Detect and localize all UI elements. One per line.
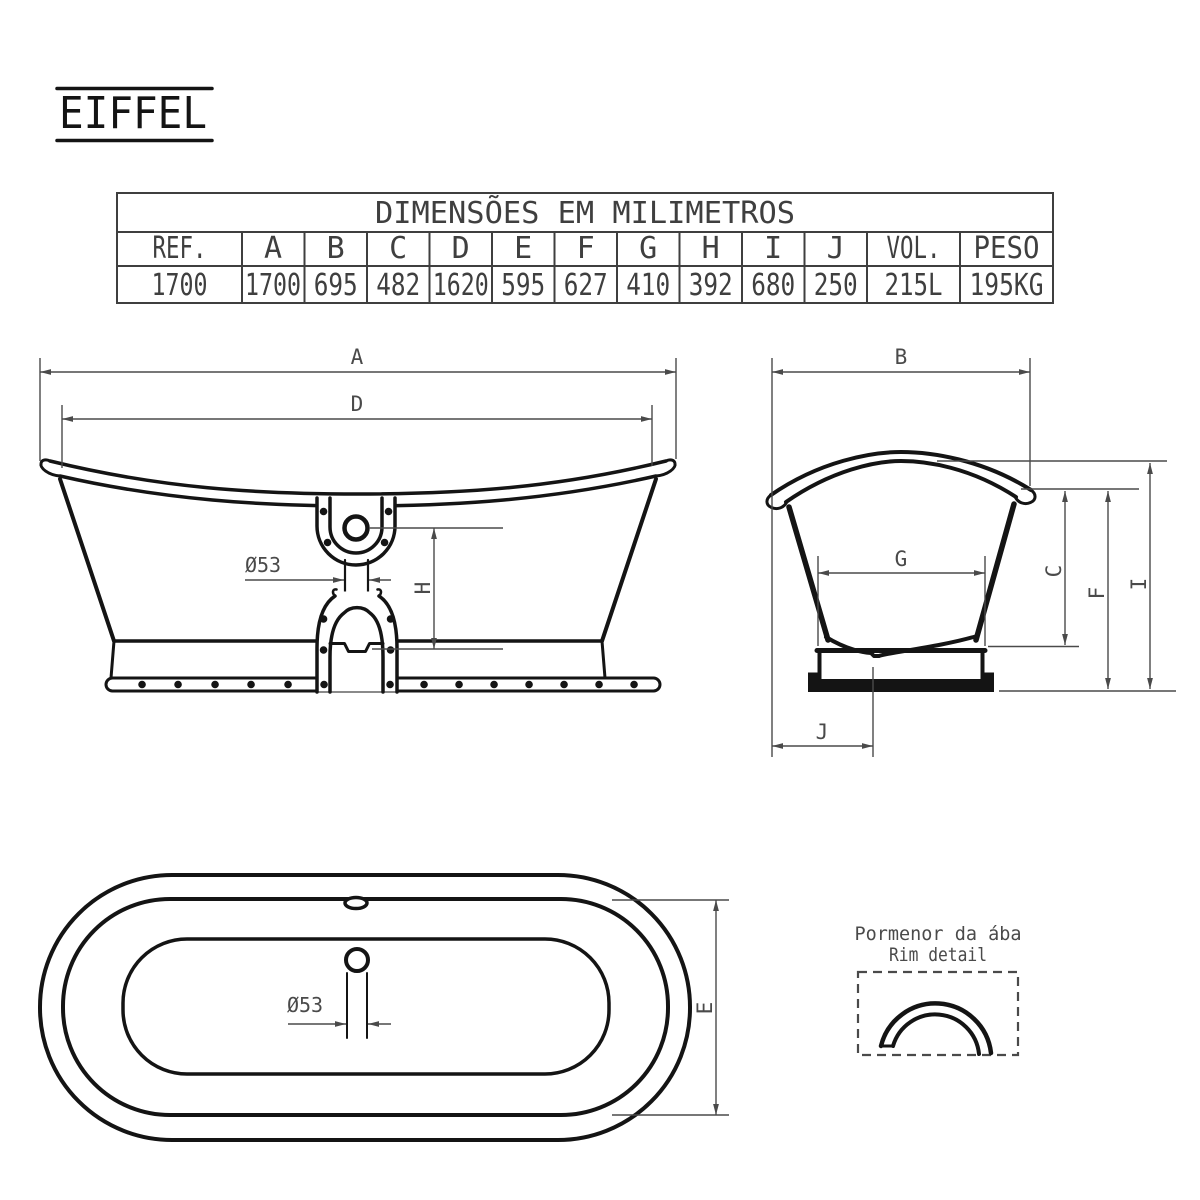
table-col-peso: PESO	[974, 231, 1040, 266]
table-val-vol: 215L	[885, 268, 943, 303]
drawing-sheet: EIFFEL DIMENSÕES EM MILIMETROS REF. A B …	[0, 0, 1200, 1200]
table-val-ref: 1700	[152, 268, 208, 303]
dim-label-a: A	[351, 345, 364, 369]
dim-label-g: G	[895, 547, 908, 571]
end-view: B G C F I J	[767, 345, 1176, 757]
dim-label-c: C	[1042, 565, 1066, 578]
drain-hole-plan	[346, 949, 368, 971]
dim-label-h: H	[411, 582, 435, 595]
table-val-c: 482	[376, 268, 420, 303]
dim-label-b: B	[895, 345, 908, 369]
plinth-sides	[820, 653, 983, 679]
rim-top-line	[50, 461, 666, 494]
table-col-h: H	[702, 231, 720, 266]
table-col-g: G	[639, 231, 657, 266]
rim-detail-title-en: Rim detail	[889, 944, 987, 966]
table-col-d: D	[452, 231, 470, 266]
table-val-i: 680	[751, 268, 795, 303]
table-col-c: C	[389, 231, 407, 266]
drain-center-lines	[347, 973, 367, 1038]
title-block: EIFFEL	[57, 88, 212, 141]
table-col-b: B	[327, 231, 345, 266]
table-val-d: 1620	[433, 268, 489, 303]
overflow-hole	[345, 898, 367, 909]
table-val-h: 392	[689, 268, 733, 303]
table-val-e: 595	[501, 268, 545, 303]
dim-label-d: D	[351, 392, 364, 416]
table-val-f: 627	[564, 268, 608, 303]
rim-detail-outer-arc	[881, 1003, 991, 1053]
dimensions-table: DIMENSÕES EM MILIMETROS REF. A B C D E F…	[117, 193, 1053, 303]
dim-label-drain-side: Ø53	[245, 553, 281, 577]
dim-label-i: I	[1127, 578, 1151, 591]
table-val-peso: 195KG	[970, 268, 1044, 303]
rim-detail: Pormenor da ába Rim detail	[855, 923, 1022, 1055]
table-col-vol: VOL.	[887, 231, 941, 266]
table-val-b: 695	[314, 268, 358, 303]
plan-outer-rim	[40, 875, 690, 1140]
dim-label-e: E	[693, 1002, 717, 1015]
table-val-g: 410	[626, 268, 670, 303]
technical-drawing: EIFFEL DIMENSÕES EM MILIMETROS REF. A B …	[0, 0, 1200, 1200]
table-col-j: J	[827, 231, 845, 266]
drawing-title: EIFFEL	[59, 88, 207, 139]
side-view: A D Ø53 H	[40, 345, 676, 692]
table-col-i: I	[764, 231, 782, 266]
table-col-ref: REF.	[153, 231, 207, 266]
table-col-f: F	[577, 231, 595, 266]
dim-label-f: F	[1085, 587, 1109, 600]
top-view: Ø53 E	[40, 875, 729, 1140]
rim-detail-title-pt: Pormenor da ába	[855, 923, 1022, 945]
dim-label-j: J	[816, 720, 829, 744]
plinth-base-bar	[808, 679, 994, 692]
table-val-a: 1700	[245, 268, 301, 303]
table-val-j: 250	[814, 268, 858, 303]
plan-inner-rim	[63, 899, 668, 1115]
end-rim-right-curl	[1016, 490, 1036, 504]
drain-hole-side	[345, 517, 368, 540]
table-col-e: E	[514, 231, 532, 266]
rim-detail-inner-arc	[893, 1014, 979, 1054]
end-walls	[789, 504, 1014, 640]
dim-label-drain-top: Ø53	[287, 993, 323, 1017]
table-header: DIMENSÕES EM MILIMETROS	[375, 194, 795, 231]
table-col-a: A	[264, 231, 282, 266]
end-rim-left-curl	[767, 495, 787, 509]
